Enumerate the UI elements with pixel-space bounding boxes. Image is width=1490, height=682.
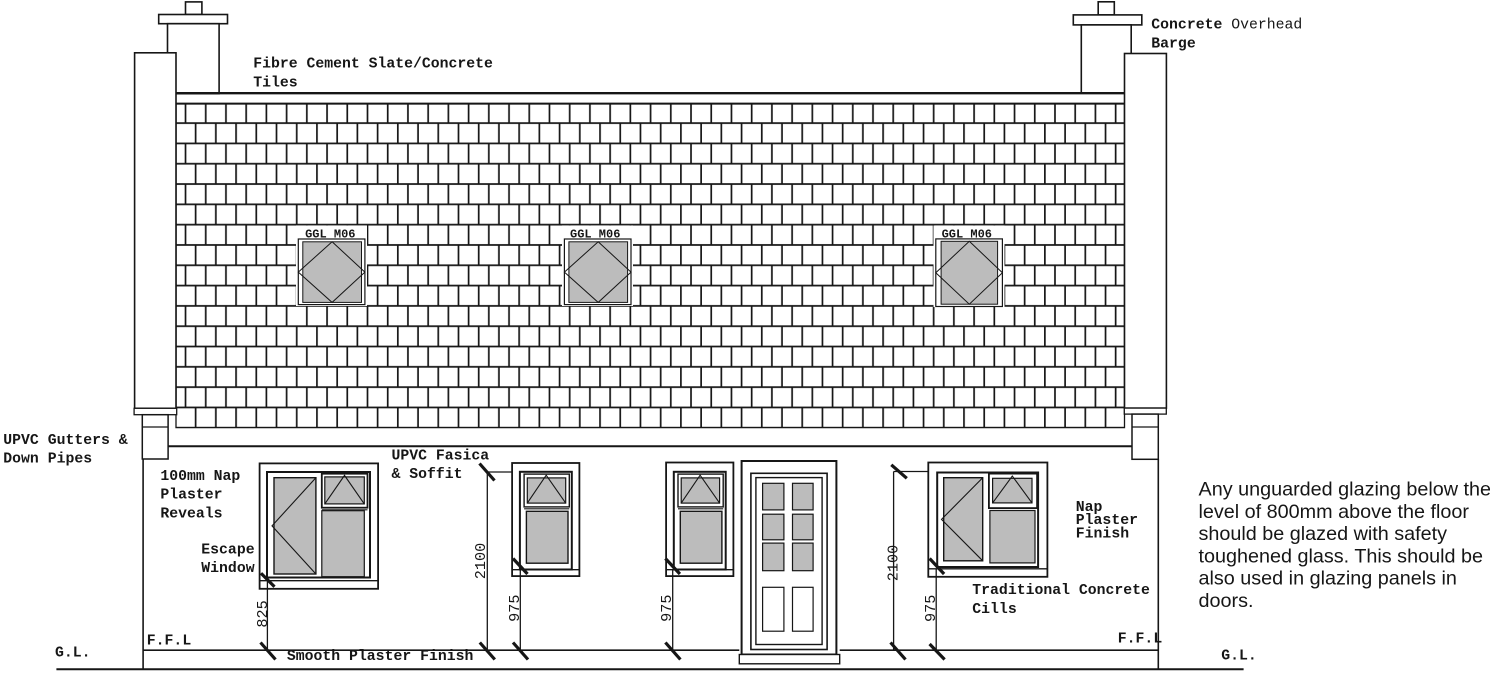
svg-text:975: 975 <box>658 595 676 622</box>
svg-text:should be glazed with safety: should be glazed with safety <box>1199 523 1448 545</box>
svg-text:GGL M06: GGL M06 <box>305 227 355 241</box>
svg-text:GGL M06: GGL M06 <box>942 227 992 241</box>
svg-text:& Soffit: & Soffit <box>392 467 463 483</box>
svg-text:100mm Nap: 100mm Nap <box>160 469 240 485</box>
svg-text:Tiles: Tiles <box>253 76 297 92</box>
svg-text:Escape: Escape <box>201 542 254 558</box>
svg-text:doors.: doors. <box>1199 590 1254 612</box>
svg-text:Finish: Finish <box>1076 527 1129 543</box>
svg-text:G.L.: G.L. <box>55 645 91 661</box>
svg-text:Down Pipes: Down Pipes <box>3 452 92 468</box>
svg-text:Smooth Plaster Finish: Smooth Plaster Finish <box>287 649 473 665</box>
svg-text:F.F.L: F.F.L <box>147 633 192 649</box>
svg-text:975: 975 <box>506 595 524 622</box>
svg-text:UPVC Fasica: UPVC Fasica <box>392 449 490 465</box>
svg-text:975: 975 <box>922 595 940 622</box>
svg-text:Reveals: Reveals <box>160 506 222 522</box>
svg-text:Any unguarded glazing below th: Any unguarded glazing below the <box>1199 479 1490 501</box>
svg-text:toughened glass. This should b: toughened glass. This should be <box>1199 545 1483 567</box>
svg-text:G.L.: G.L. <box>1221 648 1257 664</box>
svg-text:Traditional Concrete: Traditional Concrete <box>972 583 1150 599</box>
svg-text:2100: 2100 <box>472 543 490 579</box>
svg-text:Barge: Barge <box>1151 36 1196 52</box>
svg-text:UPVC Gutters &: UPVC Gutters & <box>3 433 127 449</box>
svg-text:GGL M06: GGL M06 <box>570 227 620 241</box>
svg-text:2100: 2100 <box>885 545 903 581</box>
svg-text:Plaster: Plaster <box>160 487 222 503</box>
svg-text:F.F.L: F.F.L <box>1118 631 1163 647</box>
svg-text:Window: Window <box>201 561 254 577</box>
svg-text:Fibre Cement Slate/Concrete: Fibre Cement Slate/Concrete <box>253 56 493 72</box>
svg-text:825: 825 <box>254 600 272 627</box>
svg-text:also used in glazing panels in: also used in glazing panels in <box>1199 568 1457 590</box>
svg-text:Cills: Cills <box>972 602 1016 618</box>
svg-text:level of 800mm above the floor: level of 800mm above the floor <box>1199 501 1470 523</box>
svg-text:Concrete Overhead: Concrete Overhead <box>1151 17 1302 33</box>
